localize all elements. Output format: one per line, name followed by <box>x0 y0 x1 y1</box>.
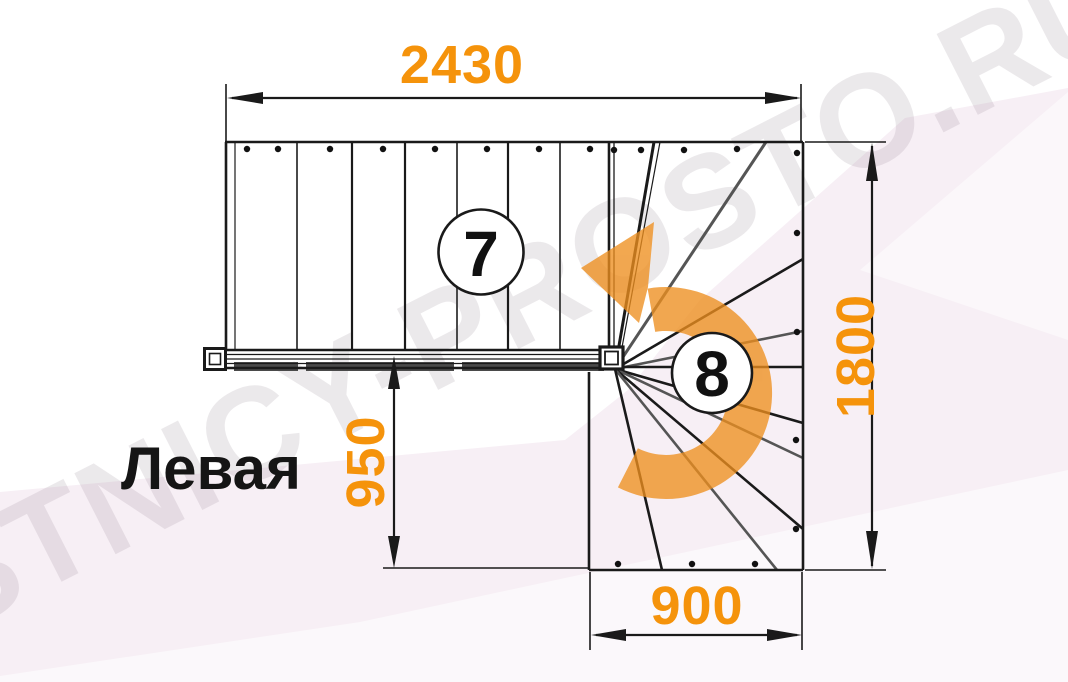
stair-plan-page: LESTNICY-PROSTO.RU <box>0 0 1068 682</box>
dimension-middle-value: 950 <box>336 415 396 508</box>
handrail <box>205 347 624 371</box>
flight-8-number: 8 <box>694 338 730 410</box>
dimension-right-value: 1800 <box>826 294 886 418</box>
dimension-top-value: 2430 <box>400 35 524 95</box>
orientation-label: Левая <box>121 435 301 502</box>
flight-8-marker: 8 <box>672 333 752 413</box>
flight-7-number: 7 <box>463 218 499 290</box>
newel-post-left-inner <box>210 354 221 365</box>
dimension-bottom-value: 900 <box>650 576 743 636</box>
newel-post-hub-inner <box>605 352 618 365</box>
stair-plan-drawing: LESTNICY-PROSTO.RU <box>0 0 1068 682</box>
flight-7-marker: 7 <box>439 210 524 295</box>
